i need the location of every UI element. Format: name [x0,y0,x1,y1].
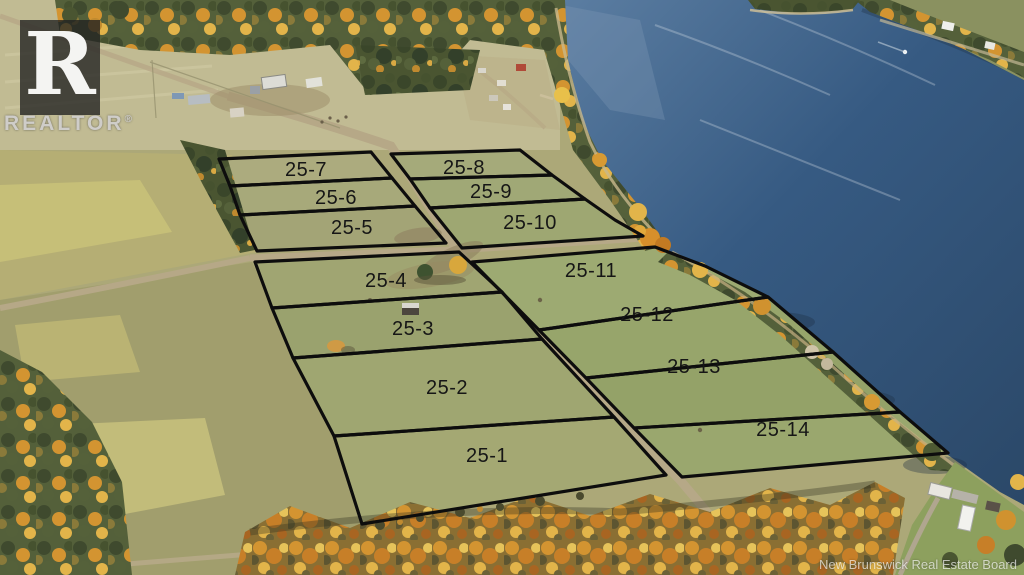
watermark-credit: New Brunswick Real Estate Board [819,557,1017,572]
lot-label-25-10: 25-10 [503,212,557,234]
lot-label-25-5: 25-5 [331,217,373,239]
lot-label-25-7: 25-7 [285,159,327,181]
lot-label-25-13: 25-13 [667,356,721,378]
lot-label-25-8: 25-8 [443,157,485,179]
registered-symbol: ® [125,114,132,125]
realtor-logo: R [20,20,100,115]
realtor-wordmark-text: REALTOR [4,112,125,135]
realtor-r-icon: R [24,22,95,108]
realtor-wordmark: REALTOR® [4,112,132,136]
lot-label-25-14: 25-14 [756,419,810,441]
lot-label-25-6: 25-6 [315,187,357,209]
farm-house [230,107,245,117]
lot-label-25-11: 25-11 [565,260,617,282]
lot-label-25-3: 25-3 [392,318,434,340]
aerial-listing-photo: 25-7 25-6 25-5 25-8 25-9 25-10 25-4 25-3… [0,0,1024,575]
lot-label-25-2: 25-2 [426,377,468,399]
lot-label-25-12: 25-12 [620,304,674,326]
lot-label-25-4: 25-4 [365,270,407,292]
lot-label-25-1: 25-1 [466,445,508,467]
aerial-scene: 25-7 25-6 25-5 25-8 25-9 25-10 25-4 25-3… [0,0,1024,575]
lot-label-25-9: 25-9 [470,181,512,203]
